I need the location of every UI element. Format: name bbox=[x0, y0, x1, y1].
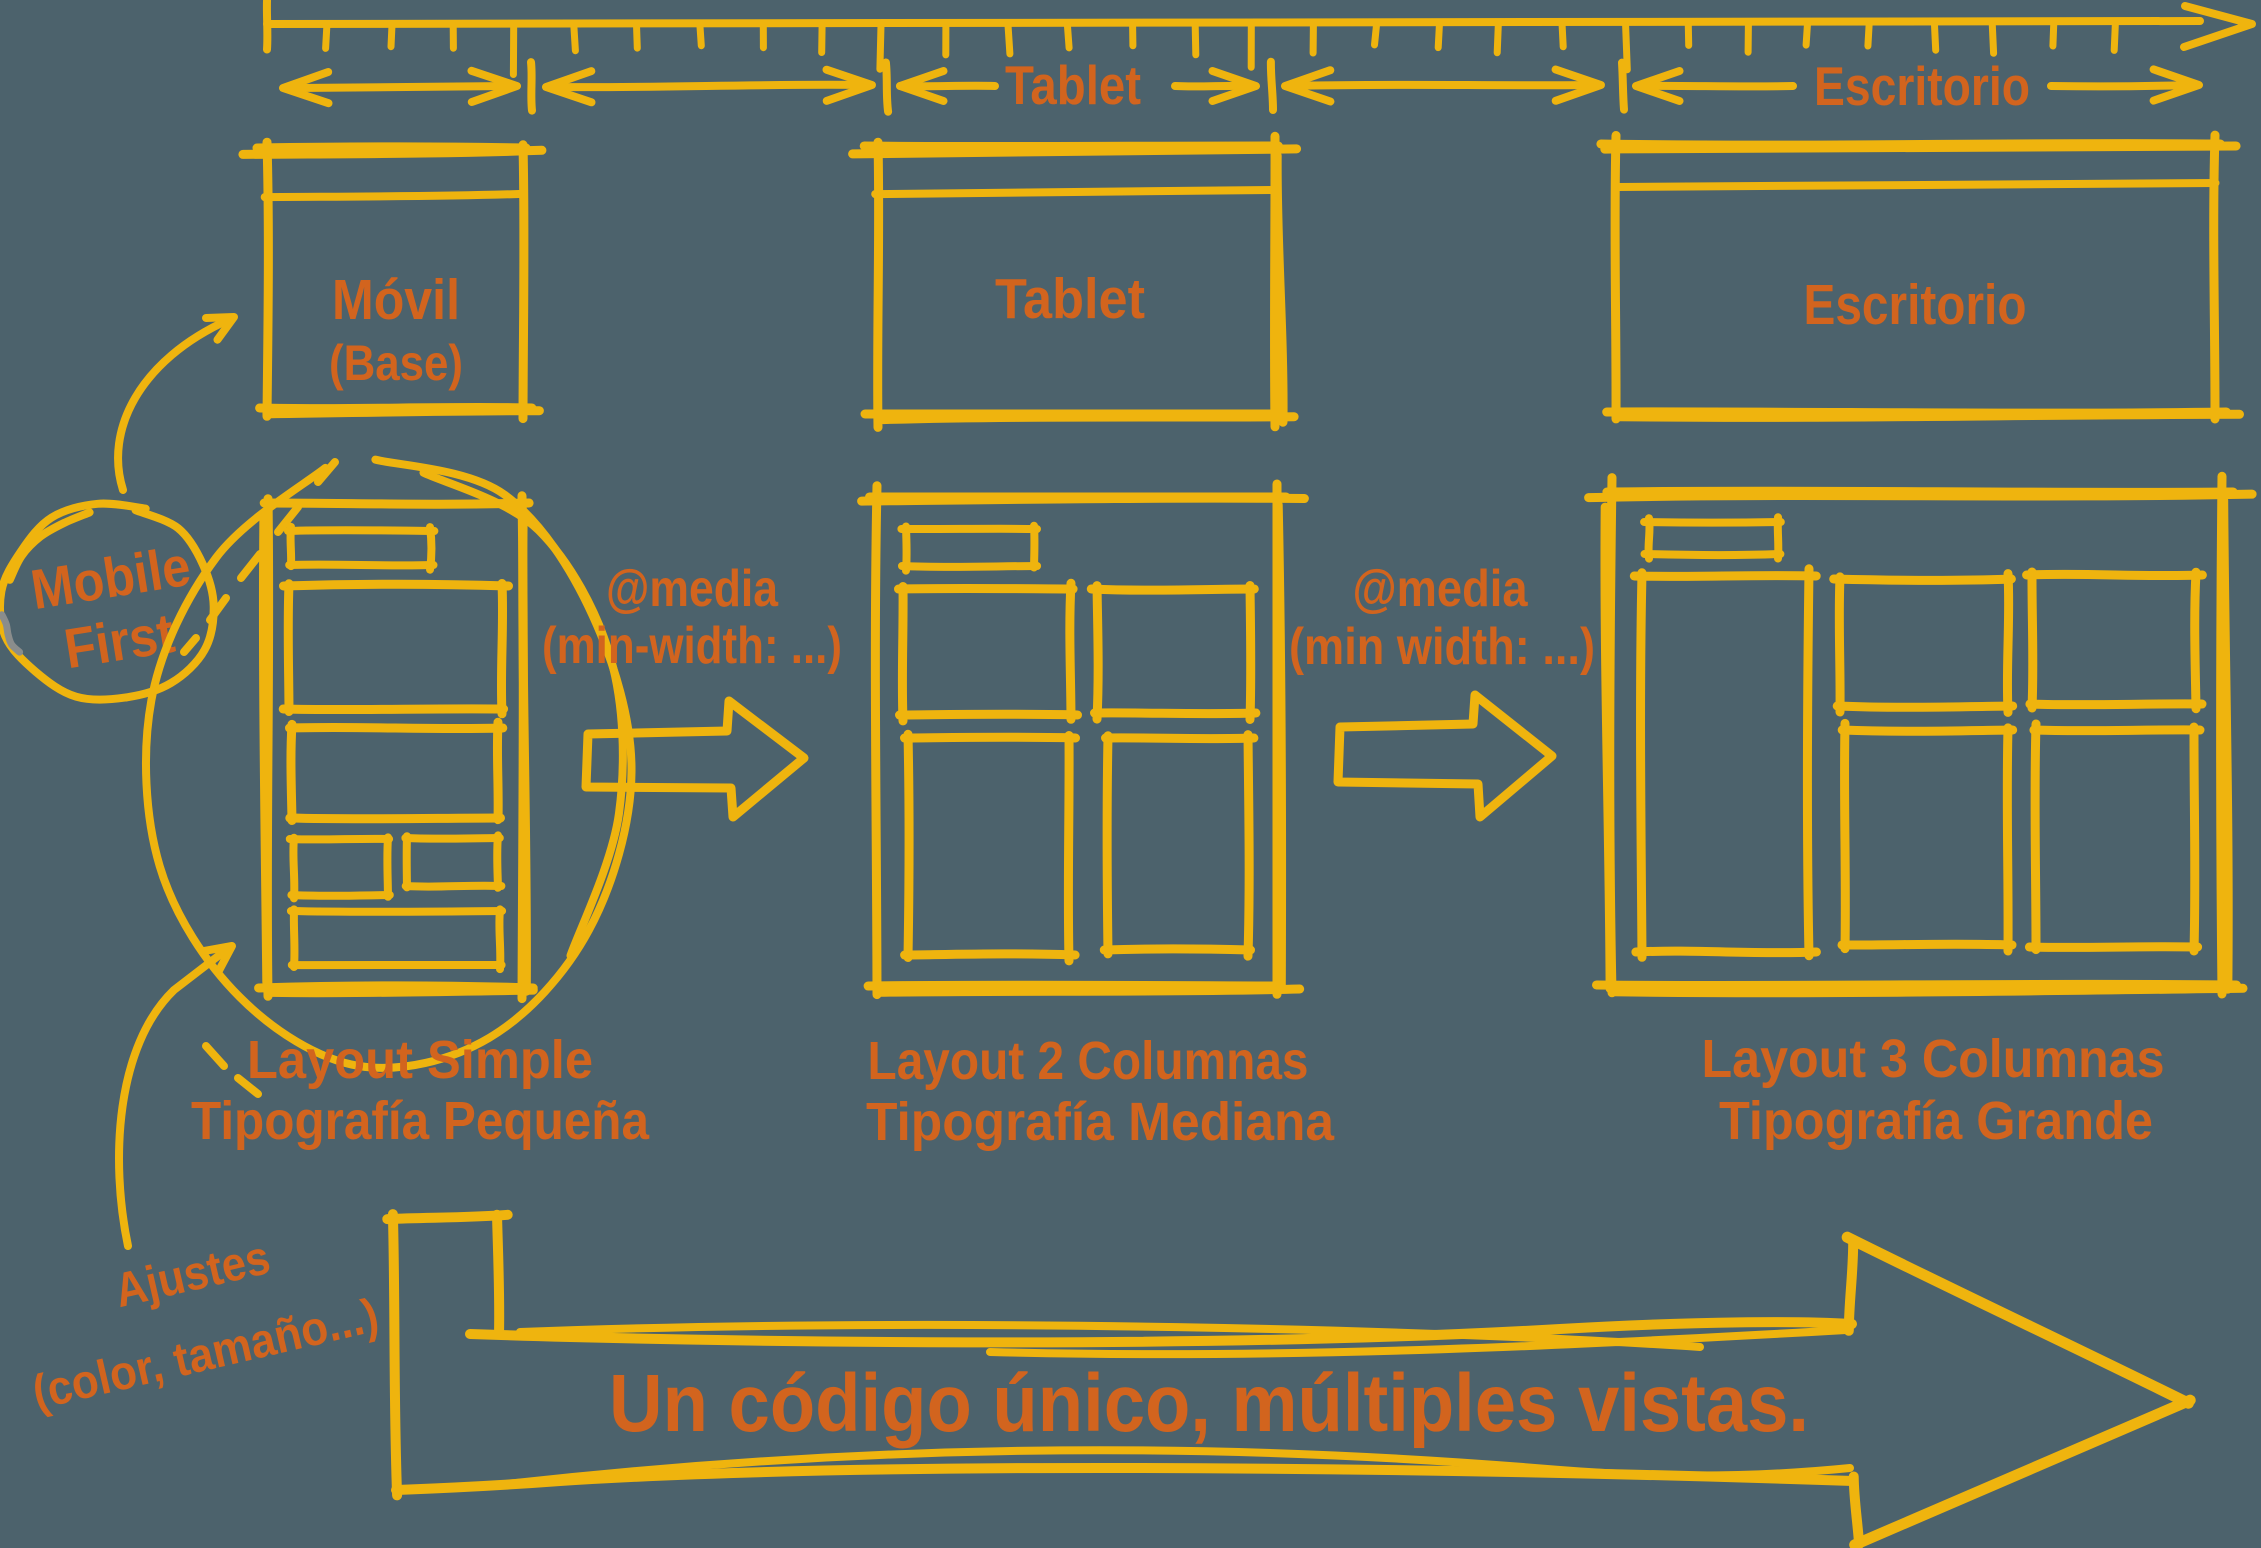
svg-text:(Base): (Base) bbox=[329, 335, 463, 391]
svg-text:@media: @media bbox=[1353, 560, 1529, 618]
svg-text:(min width: ...): (min width: ...) bbox=[1289, 618, 1595, 676]
svg-text:(min-width: ...): (min-width: ...) bbox=[542, 617, 842, 675]
svg-text:Escritorio: Escritorio bbox=[1814, 55, 2030, 117]
svg-text:Layout 3 Columnas: Layout 3 Columnas bbox=[1702, 1029, 2165, 1089]
svg-text:Móvil: Móvil bbox=[332, 268, 460, 332]
svg-text:Layout Simple: Layout Simple bbox=[247, 1030, 593, 1090]
svg-text:Escritorio: Escritorio bbox=[1804, 273, 2027, 337]
svg-text:Un código único, múltiples vis: Un código único, múltiples vistas. bbox=[609, 1358, 1809, 1449]
svg-text:Tipografía Grande: Tipografía Grande bbox=[1719, 1091, 2153, 1151]
svg-text:@media: @media bbox=[606, 560, 779, 618]
svg-text:Tipografía Mediana: Tipografía Mediana bbox=[866, 1092, 1335, 1152]
svg-text:Tablet: Tablet bbox=[995, 267, 1145, 331]
svg-text:Layout 2 Columnas: Layout 2 Columnas bbox=[868, 1031, 1309, 1091]
svg-text:Tablet: Tablet bbox=[1005, 54, 1141, 116]
svg-text:Tipografía Pequeña: Tipografía Pequeña bbox=[191, 1091, 650, 1151]
